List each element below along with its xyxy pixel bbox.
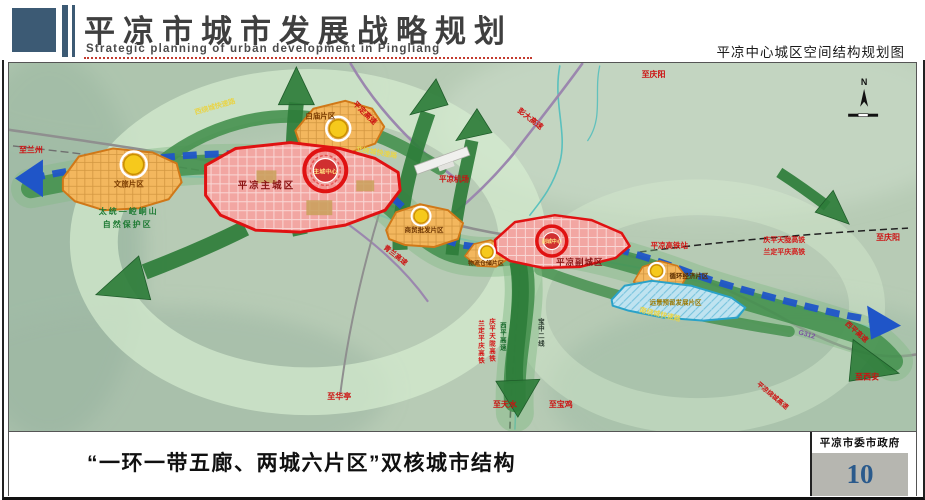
label-nature-reserve-1: 太统—崆峒山 (99, 206, 159, 216)
label-main-center: 主城中心 (313, 167, 337, 175)
node-wenlv (124, 155, 144, 175)
footer: “一环一带五廊、两城六片区”双核城市结构 平凉市委市政府 10 (8, 432, 917, 496)
header: 平凉市城市发展战略规划 Strategic planning of urban … (0, 0, 925, 62)
label-main-city: 平凉主城区 (238, 179, 295, 191)
label-to-xian: 至西安 (855, 371, 879, 381)
header-accent-bar (62, 5, 68, 57)
label-hsr-ne-2: 兰定平庆高铁 (763, 247, 805, 256)
page-subtitle-en: Strategic planning of urban development … (86, 43, 440, 55)
label-zone-xunhuan: 循环经济片区 (670, 271, 709, 280)
label-airport: 平凉机场 (439, 173, 469, 183)
logo-square (12, 8, 56, 52)
label-rail-s-4: 宝中二线 (536, 316, 544, 347)
structure-slogan: “一环一带五廊、两城六片区”双核城市结构 (87, 447, 516, 477)
label-rail-s-3: 西平高速 (498, 321, 506, 351)
agency-name: 平凉市委市政府 (812, 432, 908, 453)
node-wuliu (481, 246, 493, 258)
label-to-qingyang-rail: 至庆阳 (876, 232, 900, 242)
label-to-baoji: 至宝鸡 (549, 399, 573, 409)
label-to-tianshui: 至天水 (493, 399, 518, 409)
map-svg: N 至兰州 西绕城快速路 北绕城快速路 南绕城快速路 平定高速 彭大高速 至庆阳… (9, 63, 916, 431)
label-hsr-station: 平凉高铁站 (651, 240, 689, 250)
label-zone-wenlv: 文旅片区 (114, 178, 144, 188)
header-accent-bar-thin (72, 5, 75, 57)
label-hsr-ne-1: 庆平天陇高铁 (762, 235, 805, 244)
label-zone-yuanjing: 远景预留发展片区 (650, 298, 702, 307)
red-dotted-rule (84, 57, 532, 59)
node-baimiao (329, 120, 347, 138)
label-to-lanzhou: 至兰州 (19, 145, 43, 155)
label-sub-center: 副城中心 (542, 238, 562, 245)
node-xunhuan (651, 265, 663, 277)
info-box: 平凉市委市政府 10 (810, 432, 908, 496)
label-zone-shangmao: 商贸批发片区 (405, 225, 444, 234)
label-zone-baimiao: 白庙片区 (305, 111, 335, 121)
page-number: 10 (812, 453, 908, 496)
map-caption: 平凉中心城区空间结构规划图 (717, 41, 906, 61)
plan-document-page: 平凉市城市发展战略规划 Strategic planning of urban … (0, 0, 925, 500)
node-shangmao (414, 209, 428, 223)
label-to-huating: 至华亭 (327, 391, 351, 401)
label-to-qingyang-road: 至庆阳 (642, 69, 666, 79)
label-sub-city: 平凉副城区 (556, 257, 603, 267)
label-zone-wuliu: 物流仓储片区 (468, 259, 504, 267)
compass-n-label: N (861, 77, 867, 87)
label-nature-reserve-2: 自然保护区 (103, 219, 153, 229)
planning-map: N 至兰州 西绕城快速路 北绕城快速路 南绕城快速路 平定高速 彭大高速 至庆阳… (8, 62, 917, 432)
